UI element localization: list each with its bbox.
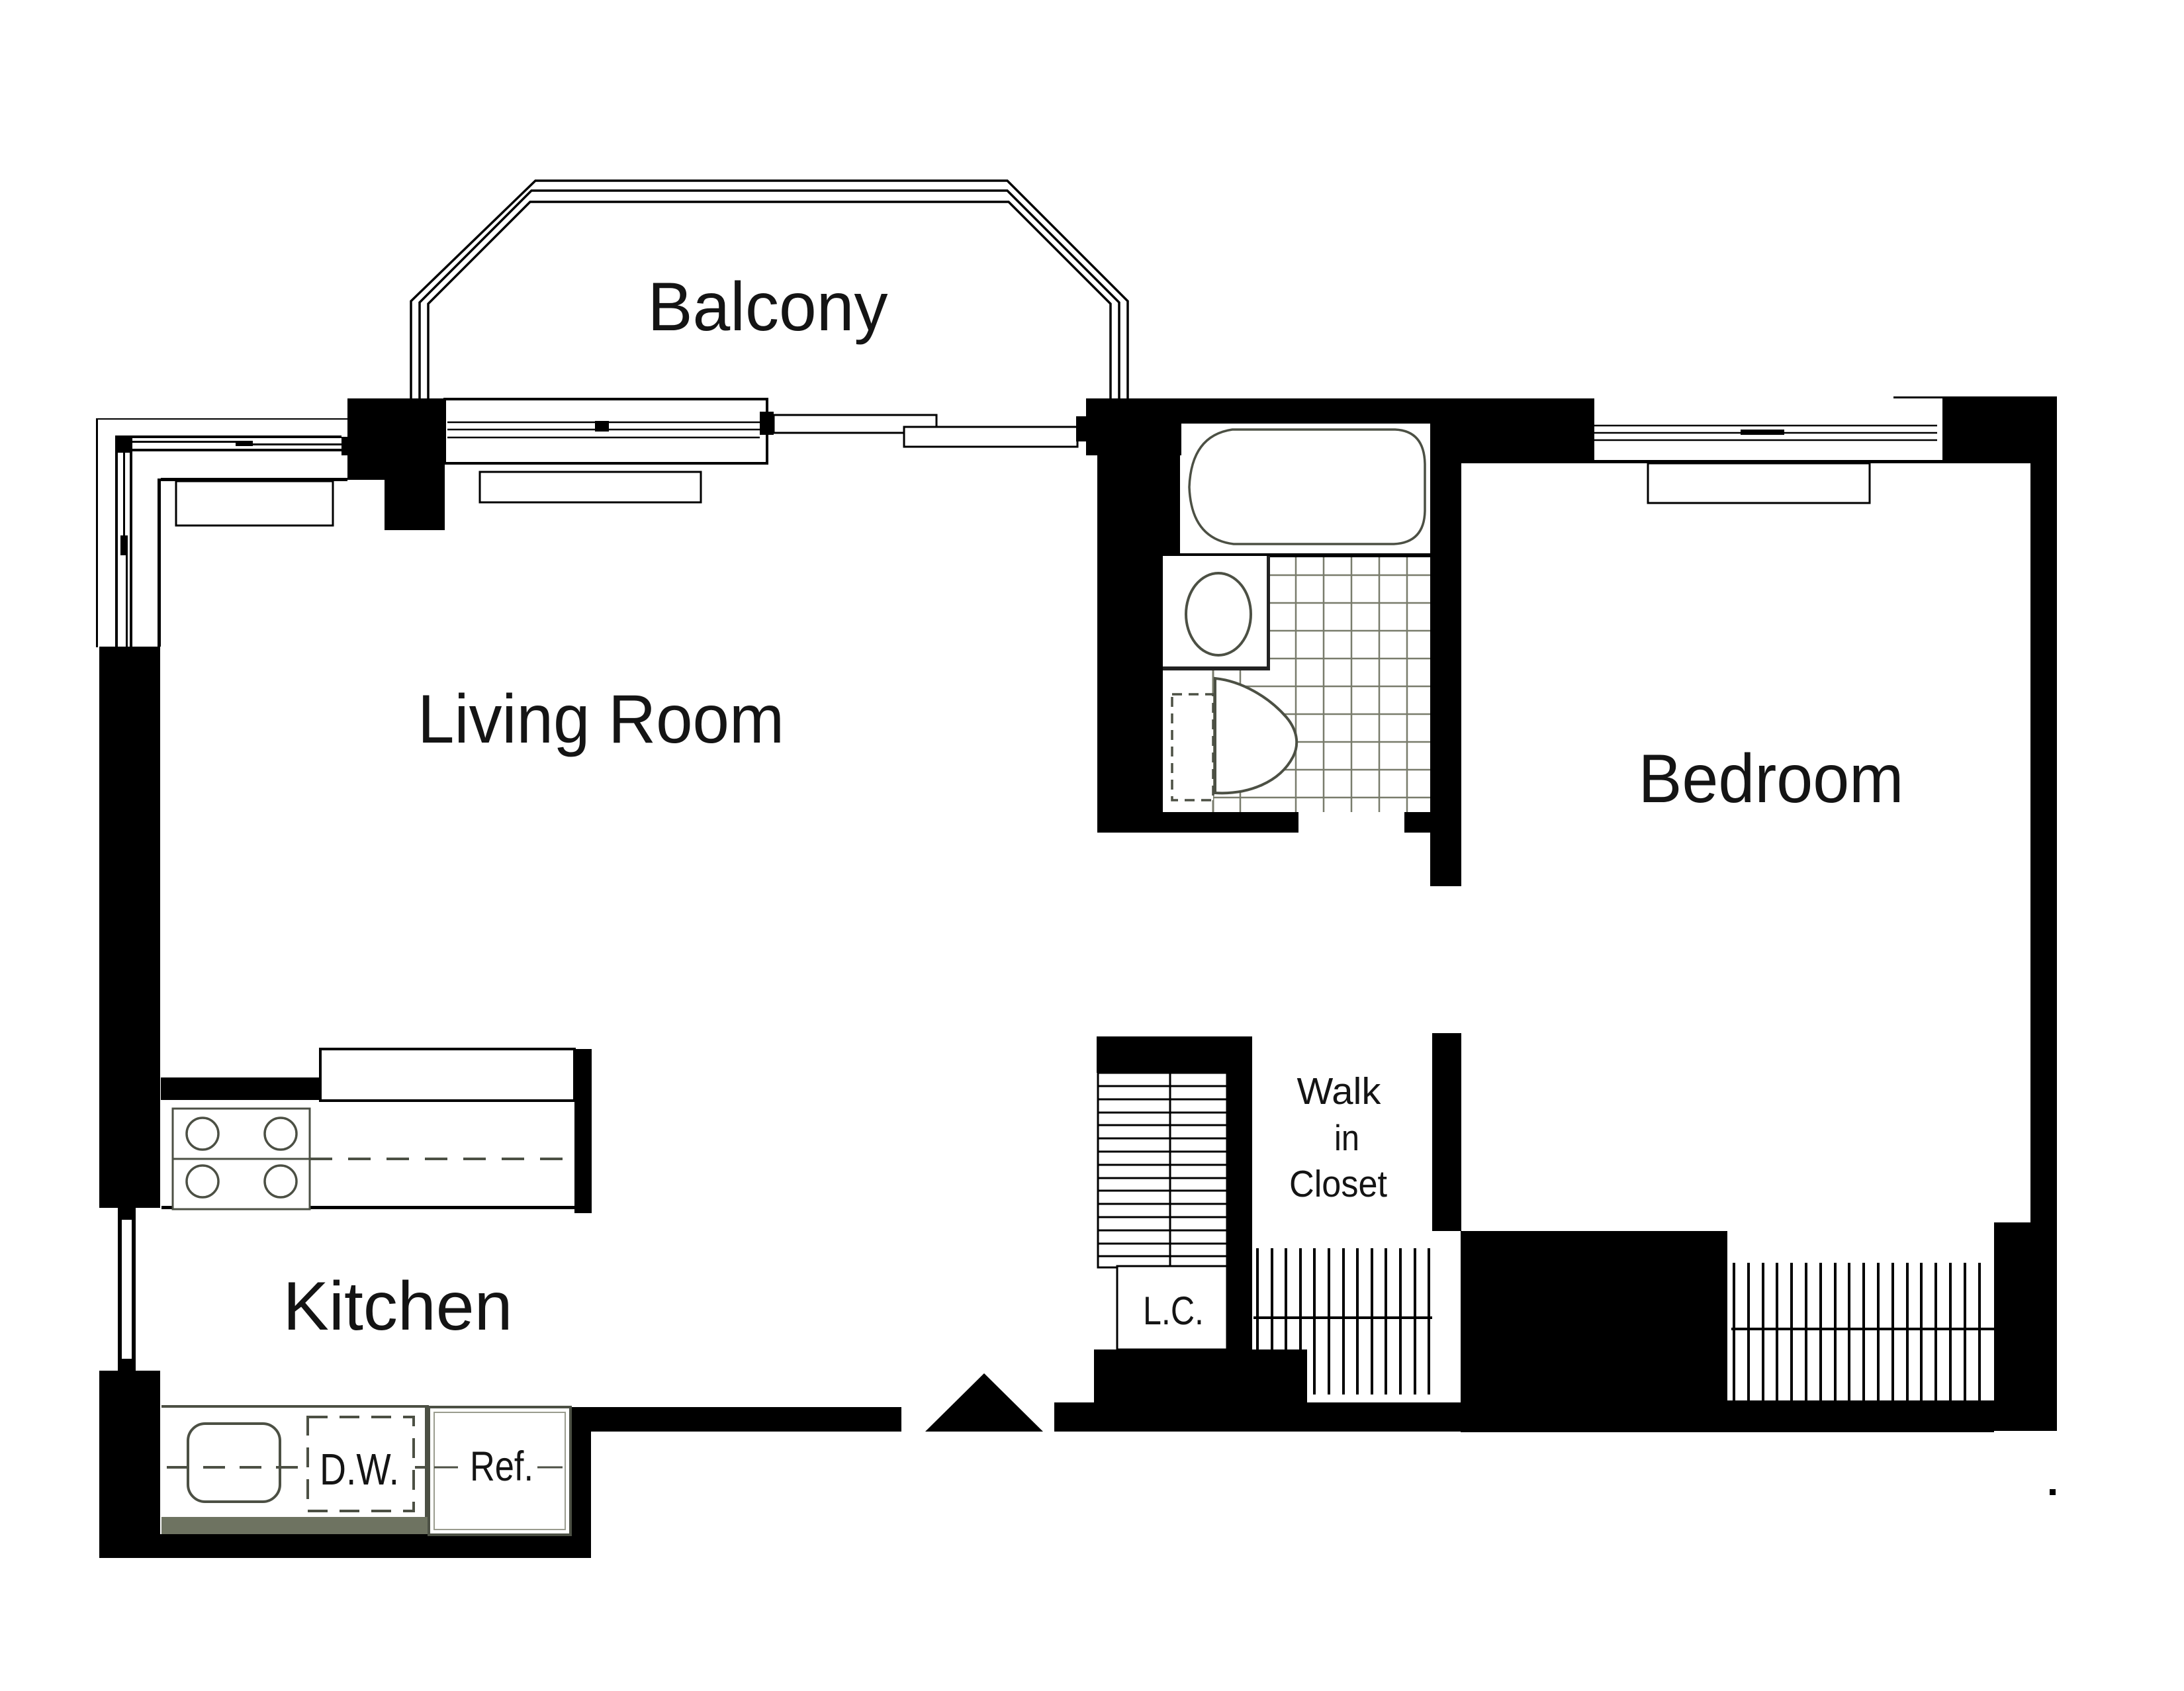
svg-text:Balcony: Balcony bbox=[648, 269, 888, 345]
svg-text:L.C.: L.C. bbox=[1143, 1289, 1204, 1333]
svg-text:in: in bbox=[1334, 1117, 1359, 1158]
svg-text:Bedroom: Bedroom bbox=[1639, 741, 1904, 817]
svg-text:Living Room: Living Room bbox=[418, 681, 784, 758]
svg-text:Walk: Walk bbox=[1297, 1070, 1381, 1113]
svg-text:Ref.: Ref. bbox=[470, 1443, 533, 1490]
svg-text:Kitchen: Kitchen bbox=[283, 1268, 513, 1345]
svg-text:D.W.: D.W. bbox=[320, 1445, 399, 1494]
svg-text:Closet: Closet bbox=[1289, 1163, 1387, 1205]
